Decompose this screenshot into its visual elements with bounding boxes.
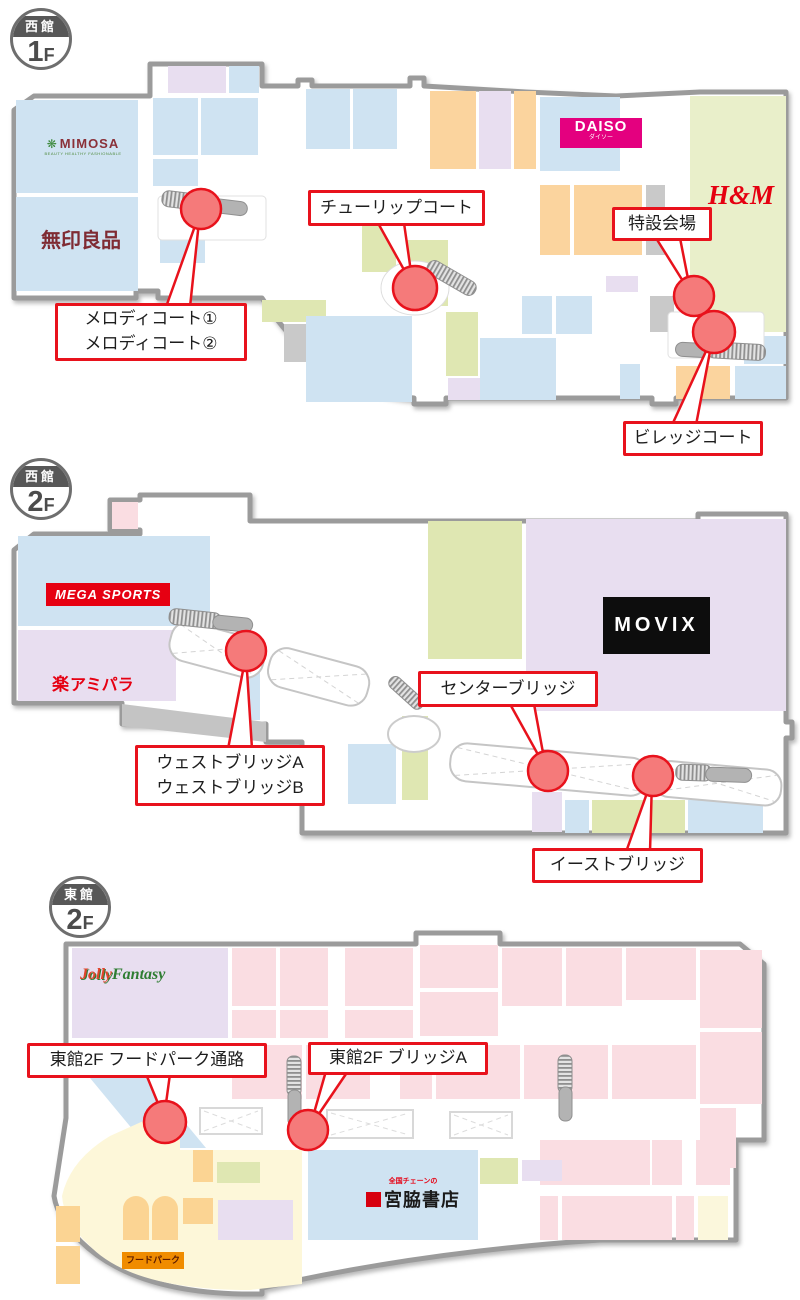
miyawaki-books-logo: 全国チェーンの 宮脇書店 [348,1176,478,1212]
badge-level-label: 2F [52,905,108,938]
floor-badge-west-1f: 西館 1F [10,8,72,70]
tulip-court-marker[interactable] [393,266,437,310]
foodpark-tag: フードパーク [122,1252,184,1269]
mega-sports-logo: MEGA SPORTS [46,583,170,606]
miyawaki-square-icon [366,1192,381,1207]
callout-east-bridge[interactable]: イーストブリッジ [532,848,703,883]
village-court-marker[interactable] [693,311,735,353]
muji-logo: 無印良品 [34,224,128,253]
callout-east2f-bridge-a[interactable]: 東館2F ブリッジA [308,1042,488,1075]
west-1f-map [14,64,786,425]
badge-level-label: 1F [13,37,69,70]
callout-west-bridge[interactable]: ウェストブリッジA ウェストブリッジB [135,745,325,806]
special-venue-marker[interactable] [674,276,714,316]
mall-floor-maps: 西館 1F 西館 2F 東館 2F ❋MIMOSA BEAUTY HEALTHY… [0,0,800,1300]
callout-tulip-court[interactable]: チューリップコート [308,190,485,226]
mimosa-logo: ❋MIMOSA BEAUTY HEALTHY FASHIONABLE [40,136,126,156]
hm-logo: H&M [708,180,772,211]
west-bridge-marker[interactable] [226,631,266,671]
callout-village-court[interactable]: ビレッジコート [623,421,763,456]
badge-building-label: 東館 [49,884,111,905]
badge-building-label: 西館 [10,16,72,37]
east-bridge-marker[interactable] [633,756,673,796]
east-2f-map [54,933,764,1294]
bridge-a-marker[interactable] [288,1110,328,1150]
escalator-icon [558,1055,572,1121]
foodpark-path-marker[interactable] [144,1101,186,1143]
bridge-oval [388,716,440,752]
badge-building-label: 西館 [10,466,72,487]
amipara-logo: 楽アミパラ [52,670,134,695]
floor-badge-west-2f: 西館 2F [10,458,72,520]
jollyfantasy-logo: JollyFantasy [80,966,165,984]
melody-court-marker[interactable] [181,189,221,229]
callout-special-venue[interactable]: 特設会場 [612,207,712,241]
badge-level-label: 2F [13,487,69,520]
plant-icon: ❋ [47,137,58,151]
floor-badge-east-2f: 東館 2F [49,876,111,938]
callout-melody-court[interactable]: メロディコート① メロディコート② [55,303,247,361]
callout-east2f-foodpark-path[interactable]: 東館2F フードパーク通路 [27,1043,267,1078]
center-bridge-marker[interactable] [528,751,568,791]
movix-logo: MOVIX [603,597,710,654]
daiso-logo: DAISO ダイソー [560,118,642,148]
callout-center-bridge[interactable]: センターブリッジ [418,671,598,707]
east-2f-bridges [200,1108,512,1138]
